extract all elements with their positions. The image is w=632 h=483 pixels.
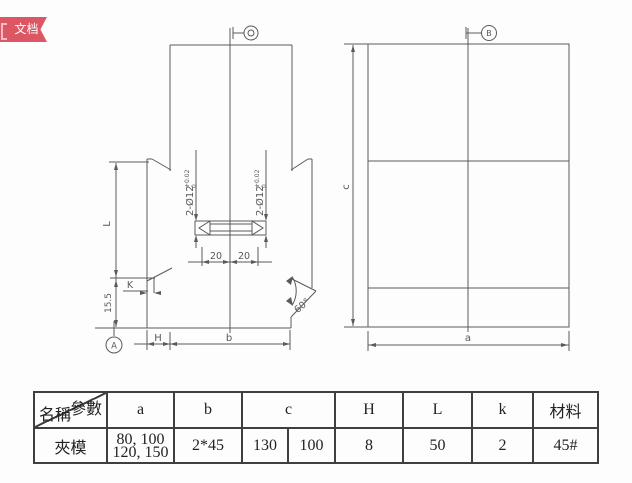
angle-arc [293, 278, 297, 305]
front-view: 2-Ø12 +0.02 0 2-Ø12 +0.02 0 L 15.5 K H b… [95, 26, 316, 353]
side-view: B c a [341, 26, 569, 352]
screenshot-canvas: 2-Ø12 +0.02 0 2-Ø12 +0.02 0 L 15.5 K H b… [0, 0, 632, 483]
corner-label-name: 名稱 [39, 401, 71, 425]
header-material: 材料 [533, 392, 598, 428]
cell-a-line2: 120, 150 [108, 446, 173, 459]
datum-b-label: B [486, 29, 492, 38]
side-arrowheads [351, 45, 568, 347]
dim-15-5: 15.5 [104, 293, 114, 313]
front-view-outline [147, 45, 316, 328]
header-k: k [472, 392, 533, 428]
cell-L: 50 [403, 428, 472, 463]
table-data-row: 夾模 80, 100 120, 150 2*45 130 100 8 50 2 … [34, 428, 598, 463]
dim-slot-left-20: 20 [210, 251, 222, 262]
hole-callout-right-text: 2-Ø12 [254, 185, 266, 216]
cell-H: 8 [335, 428, 403, 463]
badge-clipped-glyph [1, 23, 7, 40]
hole-callout-right-tol-upper: +0.02 [254, 169, 261, 188]
header-c: c [242, 392, 335, 428]
cell-name: 夾模 [34, 428, 107, 463]
dim-b: b [226, 333, 232, 344]
header-L: L [403, 392, 472, 428]
dim-H: H [154, 333, 162, 344]
header-H: H [335, 392, 403, 428]
cell-c1: 130 [242, 428, 288, 463]
front-datum-flag [233, 27, 244, 39]
dim-slot-right-20: 20 [238, 251, 250, 262]
corner-label-parameter: 參數 [70, 395, 102, 419]
hole-callout-right-tol-lower: 0 [261, 184, 268, 188]
hole-callout-left-tol-lower: 0 [191, 184, 198, 188]
hole-callout-left-text: 2-Ø12 [184, 185, 196, 216]
document-ribbon-badge: 文档 [0, 17, 47, 42]
side-dimension-lines [344, 44, 569, 351]
dim-a: a [465, 333, 471, 344]
cell-b: 2*45 [174, 428, 242, 463]
front-datum-inner-circle [248, 30, 254, 36]
header-b: b [174, 392, 242, 428]
badge-label: 文档 [8, 22, 38, 36]
cell-material: 45# [533, 428, 598, 463]
hole-callout-left-tol-upper: +0.02 [184, 169, 191, 188]
corner-cell: 參數 名稱 [34, 392, 107, 428]
cell-c2: 100 [288, 428, 335, 463]
cell-k: 2 [472, 428, 533, 463]
dim-K: K [127, 280, 134, 291]
parameter-table: 參數 名稱 a b c H L k 材料 夾模 80, 100 120, 150… [33, 391, 599, 464]
dim-L: L [102, 221, 113, 227]
cell-a: 80, 100 120, 150 [107, 428, 174, 463]
datum-a-label: A [111, 342, 117, 352]
header-a: a [107, 392, 174, 428]
front-datum-circle [244, 26, 258, 40]
table-header-row: 參數 名稱 a b c H L k 材料 [34, 392, 598, 428]
dim-c: c [341, 184, 352, 190]
